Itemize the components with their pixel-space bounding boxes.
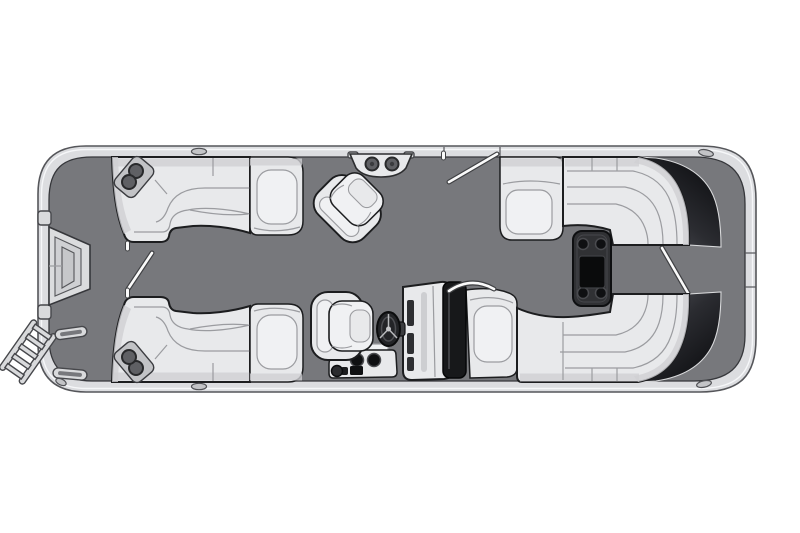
ladder-rung: [5, 363, 24, 379]
bow-gate-post: [38, 211, 51, 225]
seat-shading: [501, 159, 562, 167]
captain-chair: [311, 292, 373, 360]
armrest-pillow: [257, 315, 297, 369]
cupholder: [368, 354, 381, 367]
cupholder: [122, 175, 136, 189]
pontoon-floorplan-canvas: [0, 0, 800, 533]
seat-shading: [250, 374, 302, 381]
console-vent: [407, 357, 414, 371]
ladder-rung: [19, 344, 38, 360]
storage-box: [350, 366, 363, 375]
cupholder-center: [390, 162, 394, 166]
cleat: [192, 148, 207, 154]
fairing-pillow: [474, 306, 512, 362]
knob: [332, 366, 343, 377]
cupholder: [596, 239, 607, 250]
cupholder: [122, 350, 136, 364]
table-inset: [579, 256, 605, 288]
cupholder: [578, 239, 589, 250]
wheel-hub: [386, 327, 391, 332]
armrest-pillow: [257, 170, 297, 224]
rail-pin: [126, 288, 130, 298]
stern-table: [573, 231, 611, 306]
console-panel: [421, 292, 427, 372]
boat-floorplan-illustration: [0, 0, 800, 533]
bow-gate-door-panel: [62, 247, 74, 288]
rail-pin: [126, 241, 130, 251]
console-vent: [407, 333, 414, 354]
armrest-pillow: [506, 190, 552, 234]
console-vent: [407, 300, 414, 326]
rail-pin: [442, 151, 446, 160]
cupholder-center: [370, 162, 374, 166]
seat-shading: [250, 159, 302, 166]
windshield: [443, 282, 466, 378]
seat-shading: [565, 159, 639, 167]
seat-shading: [520, 374, 639, 382]
ladder-rung: [12, 354, 31, 370]
bow-gate-post: [38, 305, 51, 319]
cupholder: [578, 288, 589, 299]
cleat: [192, 383, 207, 389]
cupholder: [596, 288, 607, 299]
